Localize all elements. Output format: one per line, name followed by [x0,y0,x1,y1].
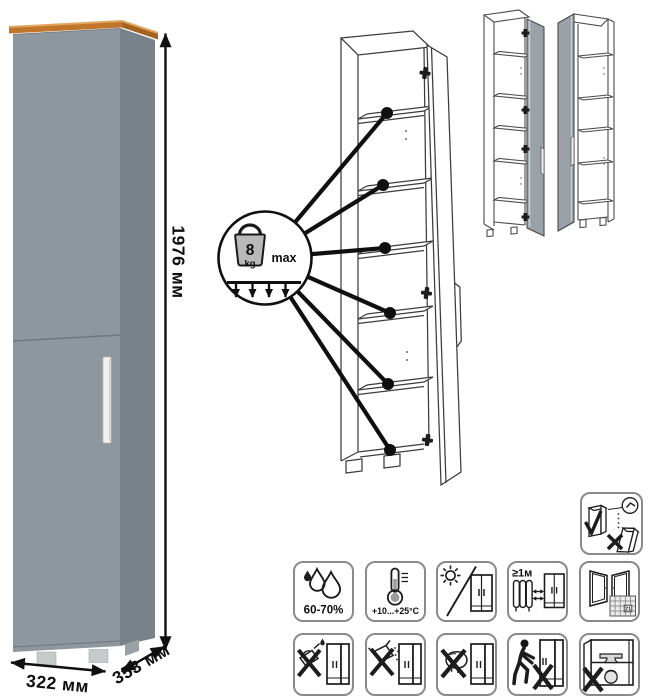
shelf-pointer-dots [377,107,396,456]
cabinet-side-face [120,28,155,646]
calendar-icon: 21 [610,596,636,616]
width-label: 322 мм [25,671,90,697]
no-heavy-load-icon [579,633,640,696]
no-direct-sunlight-icon [436,561,497,622]
door-handle [541,147,544,175]
max-load-callout: 8 kg max [219,212,312,305]
ventilation-acclimatization-icon: 21 [579,561,640,622]
double-arrow-icon [532,589,544,600]
door-hinged-left-variant [558,14,614,231]
no-solvents-icon [293,633,354,696]
cabinet-foot [37,652,56,665]
no-wet-cleaning-icon [436,633,497,696]
width-dimension: 322 мм [11,663,106,697]
no-abrasives-icon [365,633,426,696]
distance-label: ≥1м [512,568,532,580]
cabinet-photo [9,21,158,665]
product-sheet: 1976 мм 322 мм 353 мм [0,0,648,700]
anchor-to-wall-icon [580,492,643,555]
weight-unit: kg [244,259,255,270]
height-label: 1976 мм [169,225,189,298]
humidity-label: 60-70% [304,605,344,617]
sun-icon [441,566,461,586]
door-hinged-right-variant [484,10,544,237]
depth-dimension: 353 мм [109,639,174,688]
cabinet-foot [89,650,108,663]
no-dragging-icon [507,633,568,696]
drip-icon [320,639,324,646]
person-icon [514,640,534,684]
door-handle [571,136,574,166]
calendar-day: 21 [625,607,632,613]
humidity-icon: 60-70% [293,561,354,622]
weight-value: 8 [246,242,255,259]
temperature-label: +10...+25°C [372,606,420,616]
radiator-icon [514,581,533,612]
heat-source-distance-icon: ≥1м [507,561,568,622]
open-cabinet-drawing [341,31,461,485]
temperature-icon: +10...+25°C [365,561,426,622]
depth-label: 353 мм [109,639,174,688]
kettlebell-icon [605,671,617,683]
width-arrow [11,663,106,672]
shelf-load-diagram: 8 kg max [219,31,462,485]
height-dimension: 1976 мм [166,34,189,651]
max-label: max [271,251,296,265]
